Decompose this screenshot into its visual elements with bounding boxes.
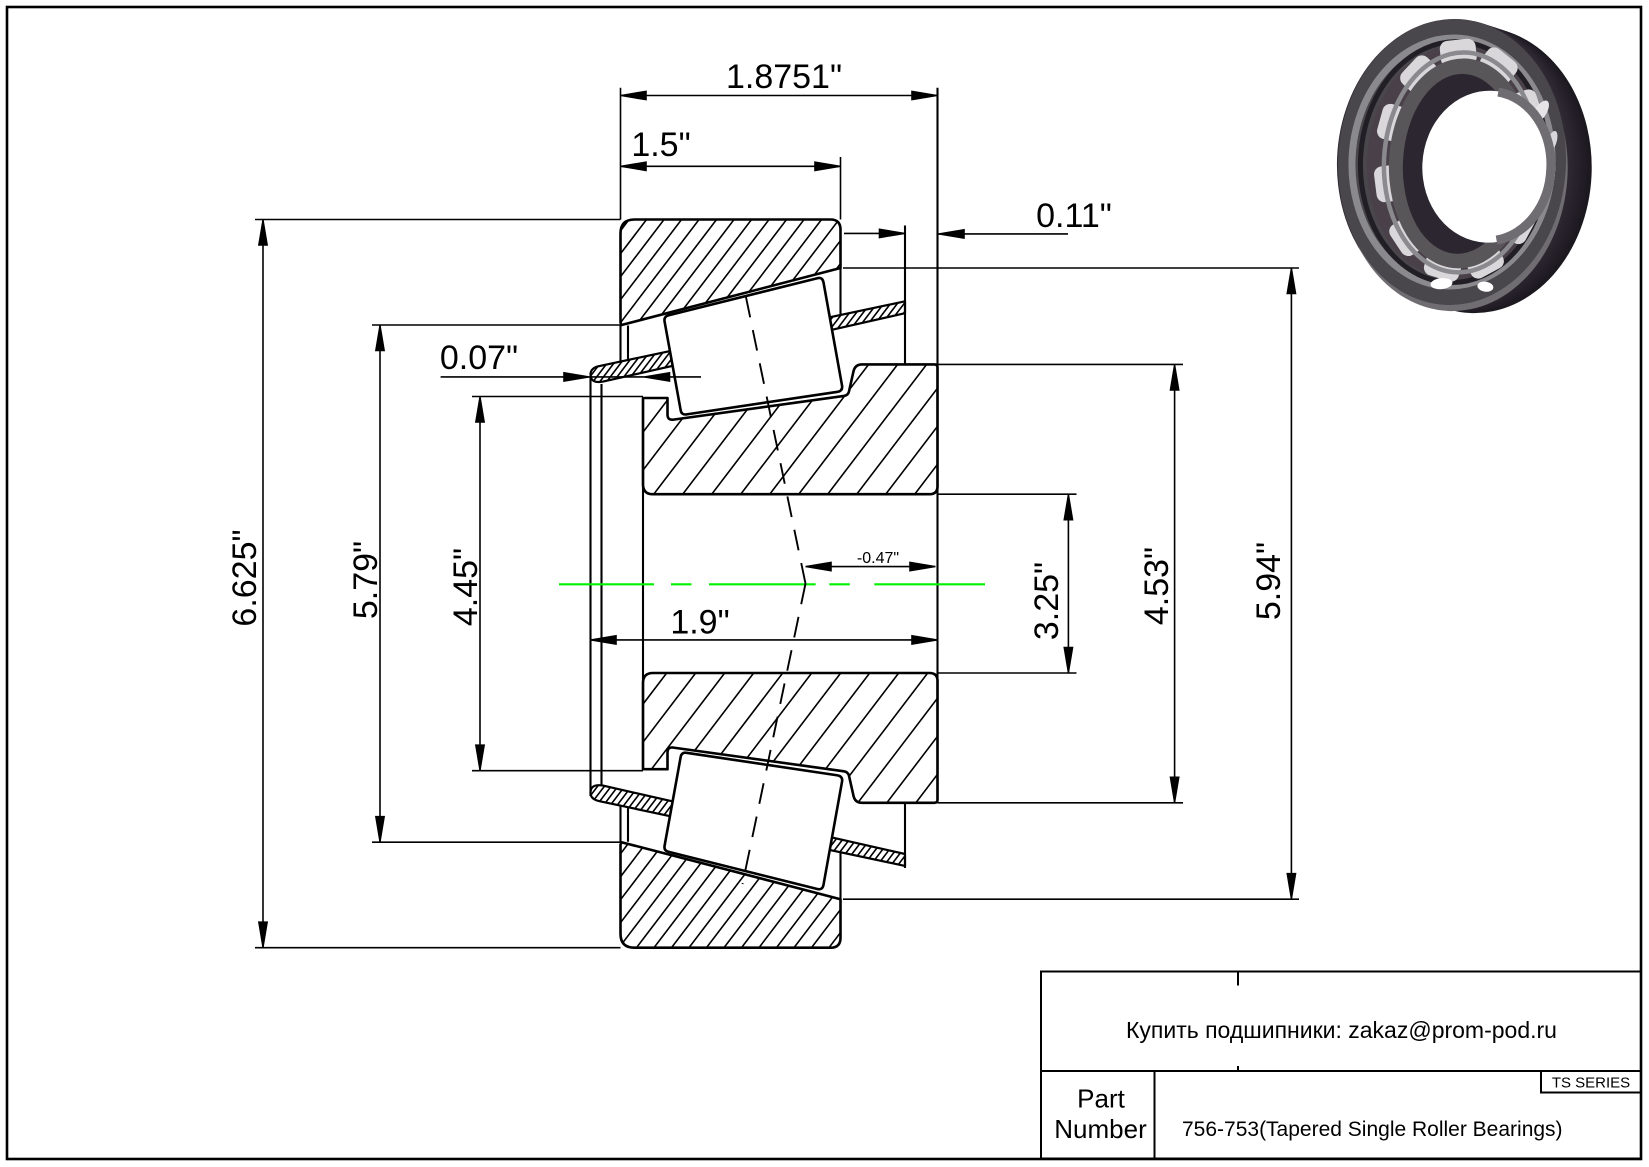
svg-text:6.625": 6.625" bbox=[226, 529, 264, 626]
svg-text:TS SERIES: TS SERIES bbox=[1552, 1075, 1630, 1092]
svg-text:3.25": 3.25" bbox=[1028, 562, 1066, 640]
svg-text:1.5": 1.5" bbox=[631, 126, 690, 164]
svg-text:5.79": 5.79" bbox=[347, 541, 385, 619]
svg-text:Number: Number bbox=[1054, 1114, 1147, 1144]
svg-text:-0.47": -0.47" bbox=[857, 550, 899, 567]
svg-text:Купить подшипники: zakaz@prom-: Купить подшипники: zakaz@prom-pod.ru bbox=[1126, 1017, 1557, 1043]
svg-text:Part: Part bbox=[1077, 1084, 1125, 1114]
svg-text:1.8751": 1.8751" bbox=[726, 58, 842, 96]
svg-text:0.07": 0.07" bbox=[440, 339, 518, 377]
svg-text:4.45": 4.45" bbox=[447, 548, 485, 626]
svg-text:0.11": 0.11" bbox=[1036, 197, 1112, 235]
svg-text:5.94": 5.94" bbox=[1250, 542, 1288, 620]
svg-text:4.53": 4.53" bbox=[1138, 547, 1176, 625]
svg-text:756-753(Tapered Single Roller: 756-753(Tapered Single Roller Bearings) bbox=[1182, 1118, 1563, 1141]
svg-text:1.9": 1.9" bbox=[670, 604, 729, 642]
